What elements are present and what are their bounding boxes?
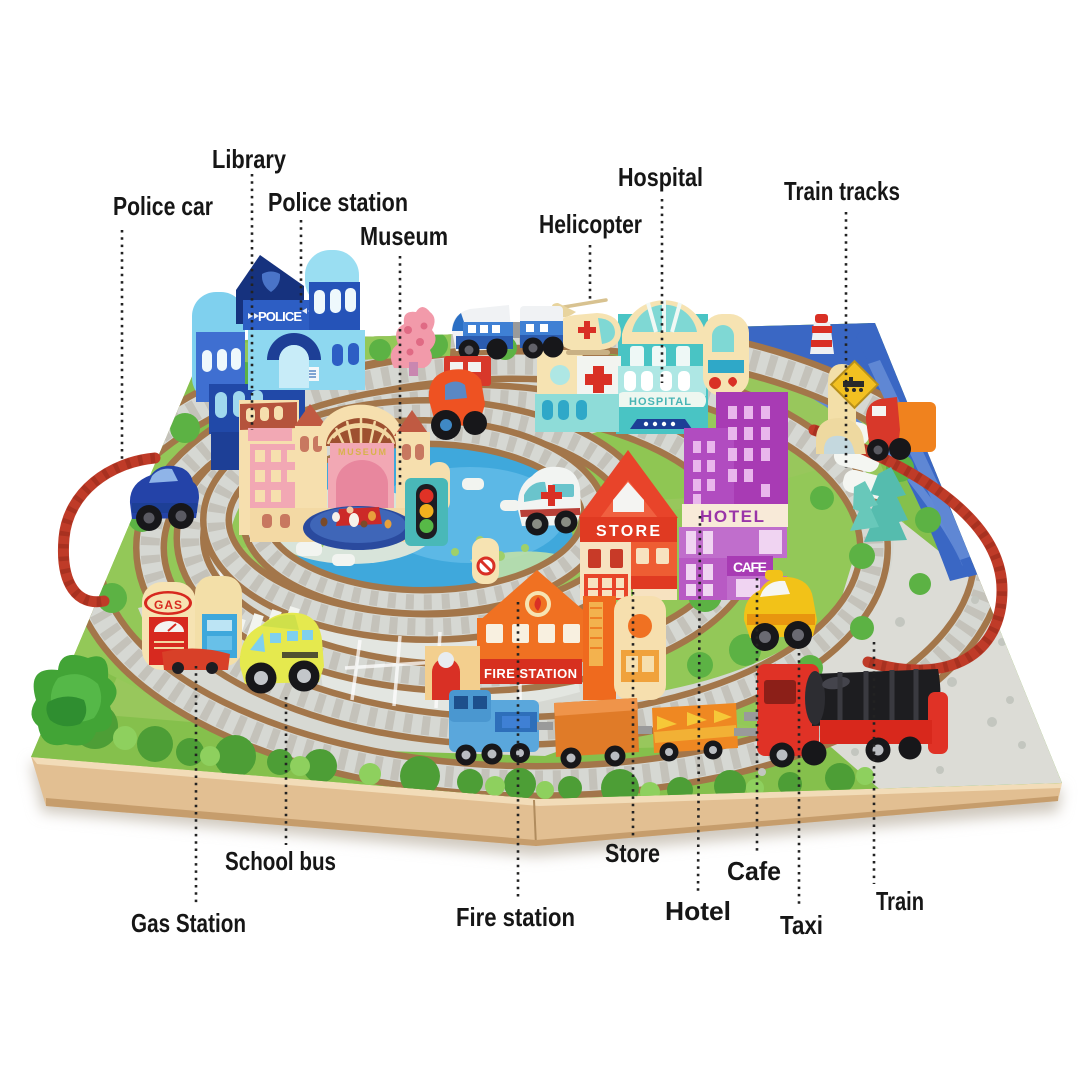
svg-text:POLICE: POLICE <box>258 309 302 324</box>
svg-text:Hotel: Hotel <box>665 896 731 926</box>
svg-text:Cafe: Cafe <box>727 856 781 886</box>
svg-text:FIRE STATION: FIRE STATION <box>484 666 577 681</box>
svg-text:HOSPITAL: HOSPITAL <box>629 396 691 408</box>
svg-text:Taxi: Taxi <box>780 910 823 940</box>
svg-text:Hospital: Hospital <box>618 162 703 192</box>
svg-text:Train: Train <box>876 886 924 916</box>
svg-text:CAFE: CAFE <box>733 559 767 575</box>
svg-text:Police station: Police station <box>268 187 408 217</box>
svg-text:Helicopter: Helicopter <box>539 209 642 239</box>
svg-text:Museum: Museum <box>360 221 448 251</box>
svg-text:HOTEL: HOTEL <box>700 507 764 526</box>
svg-text:School bus: School bus <box>225 846 336 876</box>
svg-text:STORE: STORE <box>596 523 660 540</box>
svg-text:Gas Station: Gas Station <box>131 908 246 938</box>
svg-text:Fire station: Fire station <box>456 902 575 932</box>
svg-text:Police car: Police car <box>113 191 213 221</box>
svg-text:GAS: GAS <box>154 598 182 612</box>
svg-text:Train tracks: Train tracks <box>784 176 900 206</box>
svg-text:Store: Store <box>605 838 660 868</box>
svg-text:MUSEUM: MUSEUM <box>338 447 386 457</box>
svg-text:Library: Library <box>212 144 286 174</box>
